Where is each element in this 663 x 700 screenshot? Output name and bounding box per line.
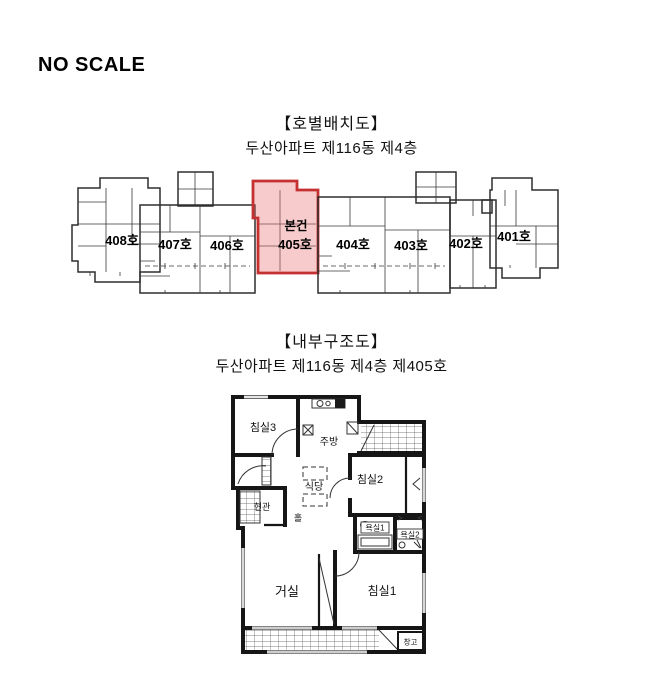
unit-block-407-406: 407호 406호	[140, 205, 255, 293]
unit-block-401: 401호	[482, 178, 558, 278]
room-bath1: 욕실1	[355, 515, 395, 552]
hall-closet-column	[238, 457, 271, 485]
room-label-living: 거실	[275, 584, 299, 599]
unit-layout-subtitle: 두산아파트 제116동 제4층	[0, 137, 663, 158]
unit-label-408: 408호	[105, 233, 139, 248]
unit-label-403: 403호	[394, 238, 428, 253]
room-label-bedroom3: 침실3	[250, 421, 276, 434]
unit-label-406: 406호	[210, 238, 244, 253]
room-bedroom1: 침실1	[335, 552, 426, 628]
room-bedroom3: 침실3	[233, 395, 298, 455]
stair-core-left	[178, 172, 213, 206]
room-label-dining: 식당	[305, 481, 323, 493]
unit-layout-drawing: 408호 407호 406호 본건 405호 404호 4	[70, 166, 565, 302]
unit-label-404: 404호	[336, 237, 370, 252]
internal-plan-subtitle: 두산아파트 제116동 제4층 제405호	[0, 355, 663, 376]
unit-layout-title: 【호별배치도】	[0, 110, 663, 134]
unit-label-405: 405호	[278, 237, 312, 252]
room-label-bedroom2: 침실2	[357, 473, 383, 486]
balcony-top-right	[359, 424, 424, 453]
unit-block-405: 본건 405호	[253, 181, 318, 273]
room-kitchen: 주방	[303, 399, 358, 448]
room-label-entrance: 현관	[254, 502, 271, 512]
room-label-bath2: 욕실2	[400, 530, 420, 540]
room-living: 거실	[241, 548, 334, 626]
room-entrance: 현관	[233, 488, 285, 525]
internal-plan-title: 【내부구조도】	[0, 328, 663, 352]
room-label-bath1: 욕실1	[365, 523, 385, 533]
unit-block-404-403: 404호 403호	[318, 197, 450, 293]
unit-label-401: 401호	[497, 229, 531, 244]
room-label-kitchen: 주방	[320, 436, 338, 448]
room-label-bedroom1: 침실1	[368, 584, 397, 598]
room-dining: 식당	[303, 467, 327, 506]
room-storage: 창고	[398, 632, 423, 650]
room-label-storage: 창고	[404, 638, 418, 647]
room-label-hall: 홀	[294, 512, 302, 523]
internal-plan-drawing: 침실3 주방 침실2	[222, 388, 447, 688]
unit-label-407: 407호	[158, 237, 192, 252]
no-scale-label: NO SCALE	[38, 54, 145, 77]
room-bedroom2: 침실2	[330, 455, 426, 515]
document-page: NO SCALE 【호별배치도】 두산아파트 제116동 제4층 408호	[0, 0, 663, 700]
subject-marker-label: 본건	[284, 218, 307, 233]
unit-label-402: 402호	[449, 236, 483, 251]
balcony-bottom	[243, 626, 424, 654]
room-bath2: 욕실2	[395, 516, 424, 552]
